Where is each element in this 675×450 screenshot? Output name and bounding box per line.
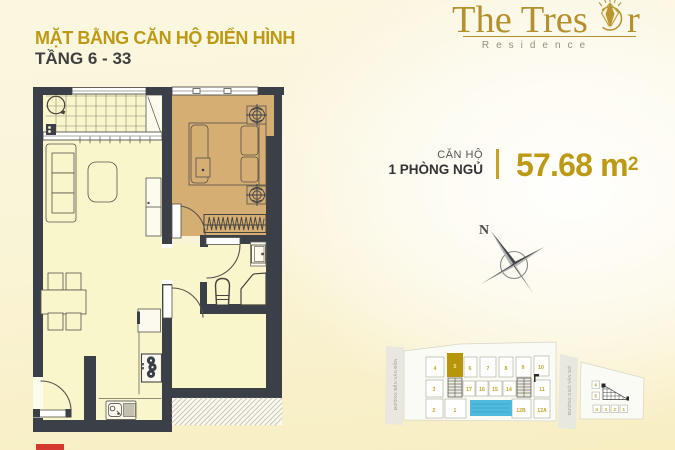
svg-text:4: 4	[434, 366, 437, 372]
svg-text:ĐƯỜNG BẾN VÂN ĐỒN: ĐƯỜNG BẾN VÂN ĐỒN	[393, 358, 398, 410]
svg-text:12B: 12B	[516, 408, 526, 414]
svg-text:17: 17	[466, 387, 472, 393]
svg-text:3: 3	[433, 387, 436, 393]
svg-text:1: 1	[454, 408, 457, 414]
svg-text:ĐƯỜNG NGÔ VĂN SỞ: ĐƯỜNG NGÔ VĂN SỞ	[567, 366, 572, 415]
svg-text:12A: 12A	[537, 408, 547, 414]
svg-text:6: 6	[469, 366, 472, 372]
svg-text:11: 11	[539, 387, 545, 393]
svg-text:16: 16	[479, 387, 485, 393]
svg-text:10: 10	[538, 365, 544, 371]
svg-text:14: 14	[506, 387, 512, 393]
svg-text:N: N	[479, 223, 489, 238]
svg-text:15: 15	[492, 387, 498, 393]
svg-text:2: 2	[433, 408, 436, 414]
svg-text:5: 5	[454, 364, 457, 370]
svg-text:7: 7	[487, 366, 490, 372]
svg-text:8: 8	[505, 366, 508, 372]
svg-text:9: 9	[522, 365, 525, 371]
